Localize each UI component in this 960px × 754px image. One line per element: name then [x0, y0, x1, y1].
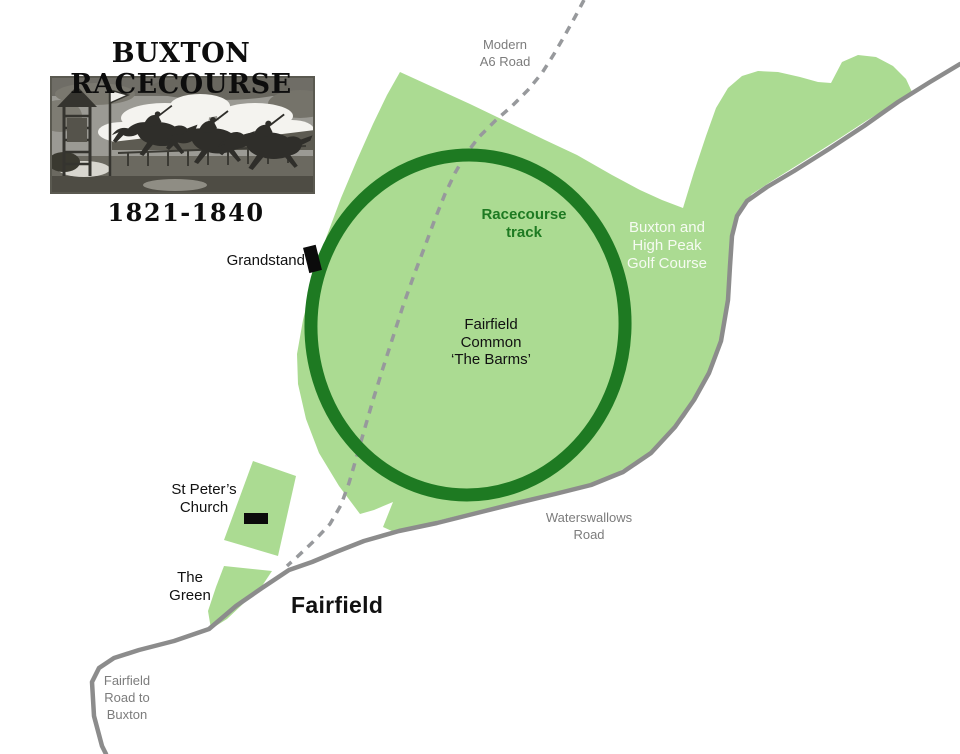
label-st-peters-church: St Peter’s Church	[171, 481, 236, 516]
label-racecourse-track: Racecourse track	[481, 206, 566, 241]
church-marker	[244, 513, 268, 524]
label-waterswallows-road: Waterswallows Road	[546, 509, 632, 543]
common-and-golf-area	[297, 55, 912, 532]
label-the-green: The Green	[169, 569, 211, 604]
date-range: 1821-1840	[96, 198, 276, 227]
label-golf-course: Buxton and High Peak Golf Course	[627, 219, 707, 273]
label-fairfield-common: Fairfield Common ‘The Barms’	[451, 316, 531, 369]
map-canvas: BUXTON RACECOURSE 1821-1840 Modern A6 Ro…	[0, 0, 960, 754]
grandstand-marker	[303, 245, 322, 273]
label-fairfield: Fairfield	[291, 592, 383, 619]
label-modern-a6-road: Modern A6 Road	[480, 36, 531, 70]
page-title: BUXTON RACECOURSE	[14, 38, 348, 100]
label-fairfield-road-to-buxton: Fairfield Road to Buxton	[104, 672, 150, 723]
label-grandstand: Grandstand	[165, 252, 305, 270]
